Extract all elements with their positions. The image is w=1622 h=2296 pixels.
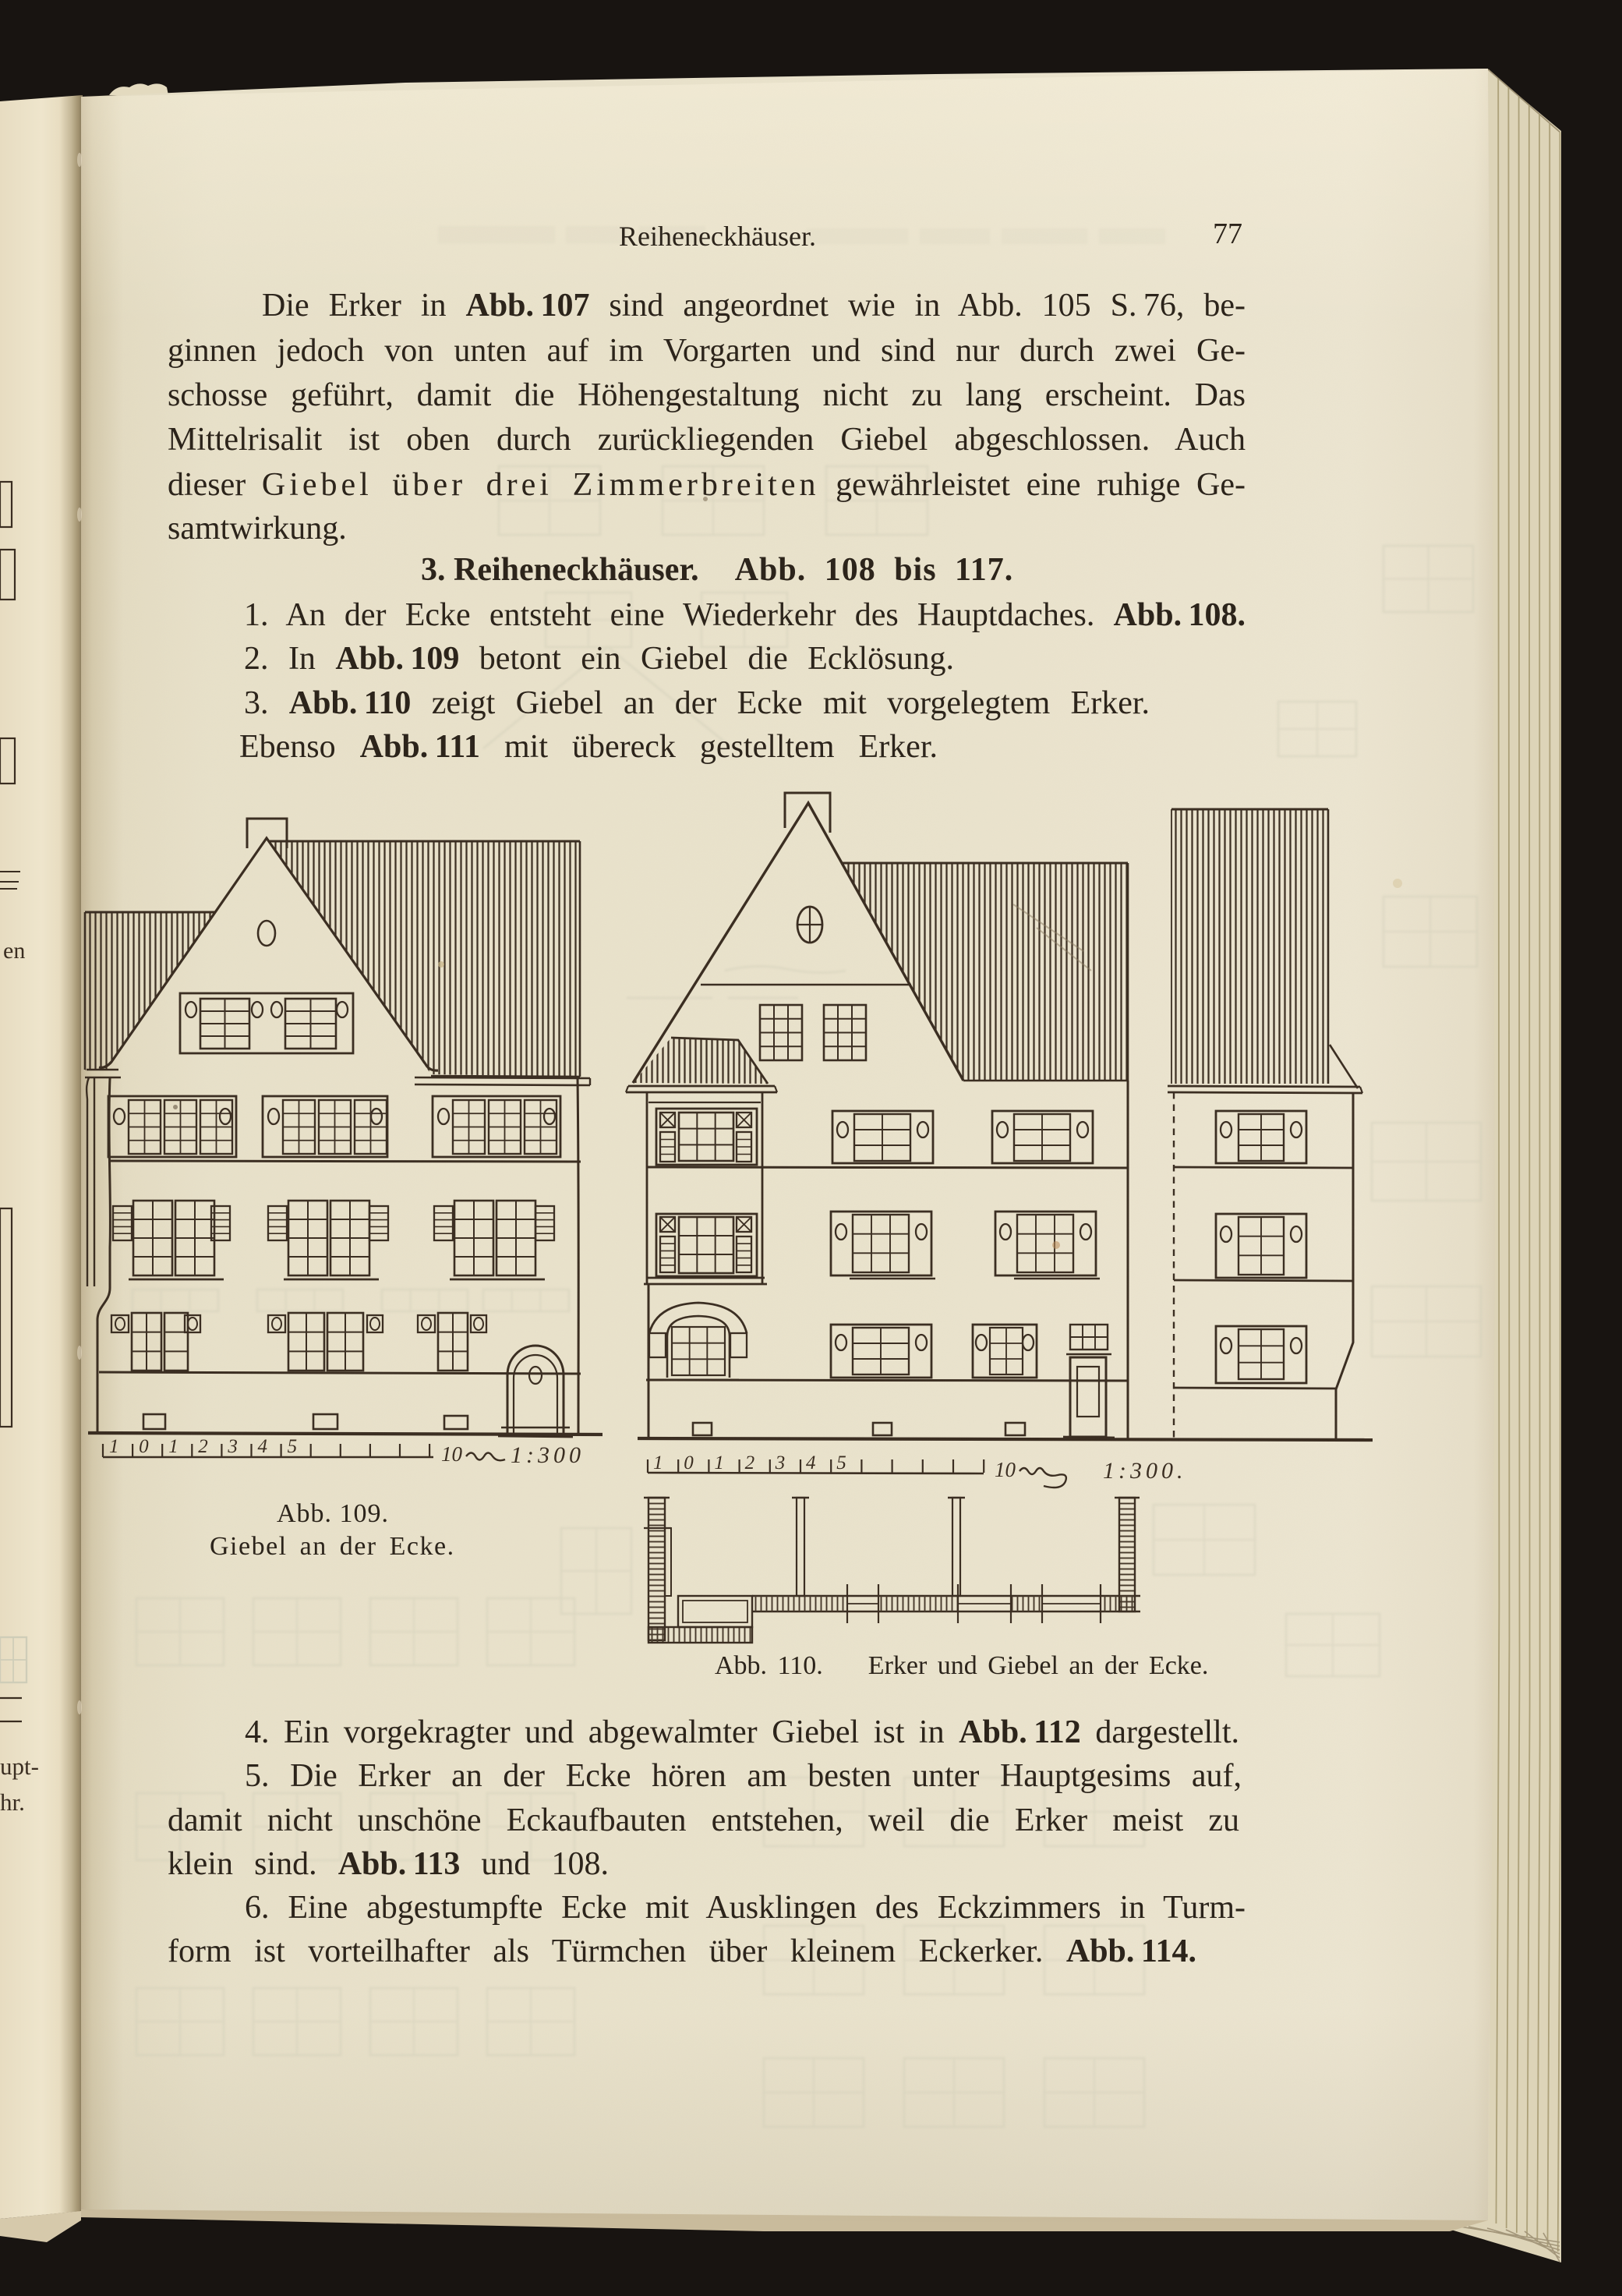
svg-text:hr.: hr. <box>0 1788 25 1816</box>
svg-text:upt-: upt- <box>0 1753 39 1780</box>
svg-text:en: en <box>3 938 25 964</box>
